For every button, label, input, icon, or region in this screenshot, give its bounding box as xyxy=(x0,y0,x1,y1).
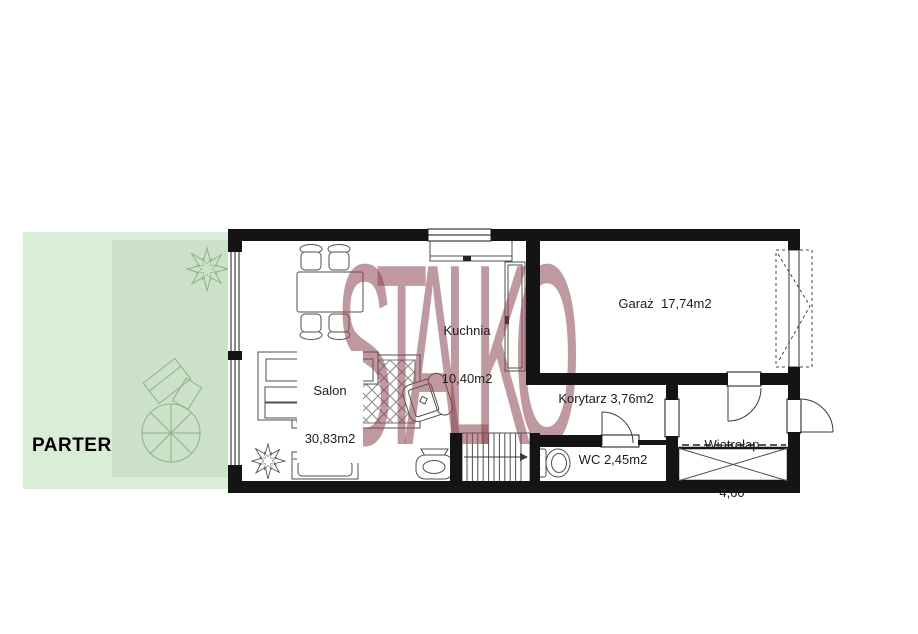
dining-chair-icon xyxy=(300,245,322,271)
room-area: 4,60 xyxy=(690,485,774,501)
room-area: 10,40m2 xyxy=(429,371,505,387)
room-area: 30,83m2 xyxy=(299,431,361,447)
parasol-icon xyxy=(142,404,200,462)
kitchen-window-icon xyxy=(428,229,491,241)
room-label-wc: WC 2,45m2 xyxy=(572,452,654,468)
room-label-garaz: Garaż 17,74m2 xyxy=(595,296,735,312)
room-name: Salon xyxy=(299,383,361,399)
floor-plan-page: STALKO xyxy=(0,0,918,634)
room-label-wiatrolap: Wiatrołap 4,60 xyxy=(690,405,774,517)
room-name: Wiatrołap xyxy=(690,437,774,453)
wc-door-icon xyxy=(601,412,639,447)
garage-door-icon xyxy=(776,250,812,367)
room-name: Kuchnia xyxy=(429,323,505,339)
floor-label: PARTER xyxy=(32,435,112,457)
room-label-salon: Salon 30,83m2 xyxy=(297,351,363,463)
entry-door-icon xyxy=(787,399,833,433)
room-label-korytarz: Korytarz 3,76m2 xyxy=(550,391,662,407)
room-label-kuchnia: Kuchnia 10,40m2 xyxy=(429,291,505,403)
corridor-passage-icon xyxy=(665,399,679,437)
plant-icon xyxy=(252,444,285,479)
dining-chair-icon xyxy=(300,314,322,340)
